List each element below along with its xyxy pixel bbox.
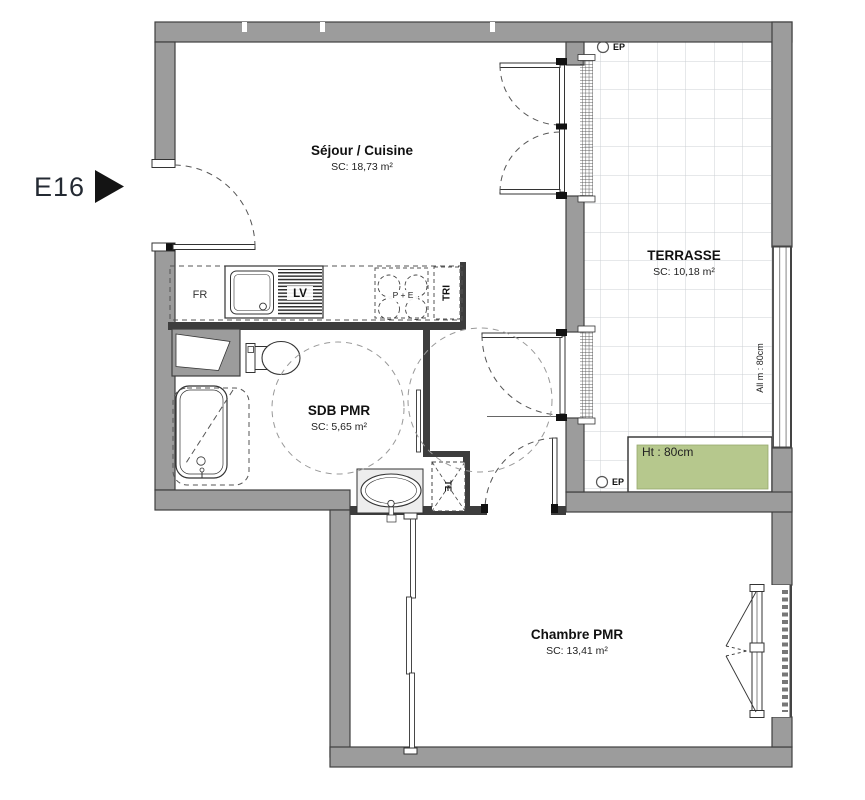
wall-terrace-bottom [566,492,792,512]
floor-plan: E16 Séjour / Cuisine SC: 18,73 m² TERRAS… [0,0,865,800]
room-label-terrasse: TERRASSE SC: 10,18 m² [647,248,721,278]
kitchen [170,266,462,320]
bedroom-door [481,438,558,513]
sill-height-label: All m : 80cm [755,343,765,393]
wall-kitchen-nook [460,262,466,326]
entry-door [152,160,255,252]
kitchen-sink-icon [231,271,274,314]
room-name: Chambre PMR [531,627,623,643]
wardrobe-sliding-doors [404,513,417,754]
room-label-sejour: Séjour / Cuisine SC: 18,73 m² [311,143,413,173]
bathtub-icon [173,386,249,485]
electrical-panel-label: TE [443,480,453,492]
waste-sorting-label: TRI [441,285,453,301]
fridge-label: FR [193,289,208,302]
wall-glazed-seg2 [566,196,584,332]
wall-sdb-bottom [155,490,350,510]
room-name: TERRASSE [647,248,721,264]
cooktop-label: P + E [393,291,414,301]
room-area: SC: 5,65 m² [308,421,370,433]
bedroom-door-swing [485,438,555,510]
dishwasher-label: LV [293,288,307,301]
room-label-chambre: Chambre PMR SC: 13,41 m² [531,627,623,657]
rain-outlet-top-icon [598,42,609,53]
duct-unit [172,329,240,376]
room-label-sdb: SDB PMR SC: 5,65 m² [308,403,370,433]
wall-right-lower [772,717,792,747]
wall-bottom [330,747,792,767]
wall-top [155,22,792,42]
sdb-sliding-door [417,390,421,452]
bedroom-door-leaf [553,438,558,508]
wall-glazed-seg3 [566,418,584,492]
entrance-arrow-icon [95,170,124,203]
ep-bottom-label: EP [612,477,624,487]
wall-right-middle [772,448,792,585]
bedroom-window [726,585,792,718]
planter-height-label: Ht : 80cm [642,446,693,460]
room-area: SC: 13,41 m² [531,645,623,657]
room-area: SC: 18,73 m² [311,161,413,173]
room-area: SC: 10,18 m² [647,266,721,278]
rain-outlet-bottom-icon [597,477,608,488]
entry-door-swing [173,165,255,247]
wall-bedroom-left [330,510,350,757]
room-name: Séjour / Cuisine [311,143,413,159]
shutter-hatch-mid [580,332,593,418]
terrace-railing [772,246,792,449]
shutter-hatch-top [580,60,593,196]
terrace-double-door [500,55,595,203]
terrace-single-door [482,326,595,424]
ep-top-label: EP [613,42,625,52]
entry-door-leaf [173,245,255,250]
wall-sdb-right [423,329,430,453]
wall-right-upper [772,22,792,247]
unit-label: E16 [34,172,85,203]
wall-left-upper [155,42,175,165]
room-name: SDB PMR [308,403,370,419]
floor-plan-drawing [0,0,865,800]
toilet-icon [246,342,300,375]
